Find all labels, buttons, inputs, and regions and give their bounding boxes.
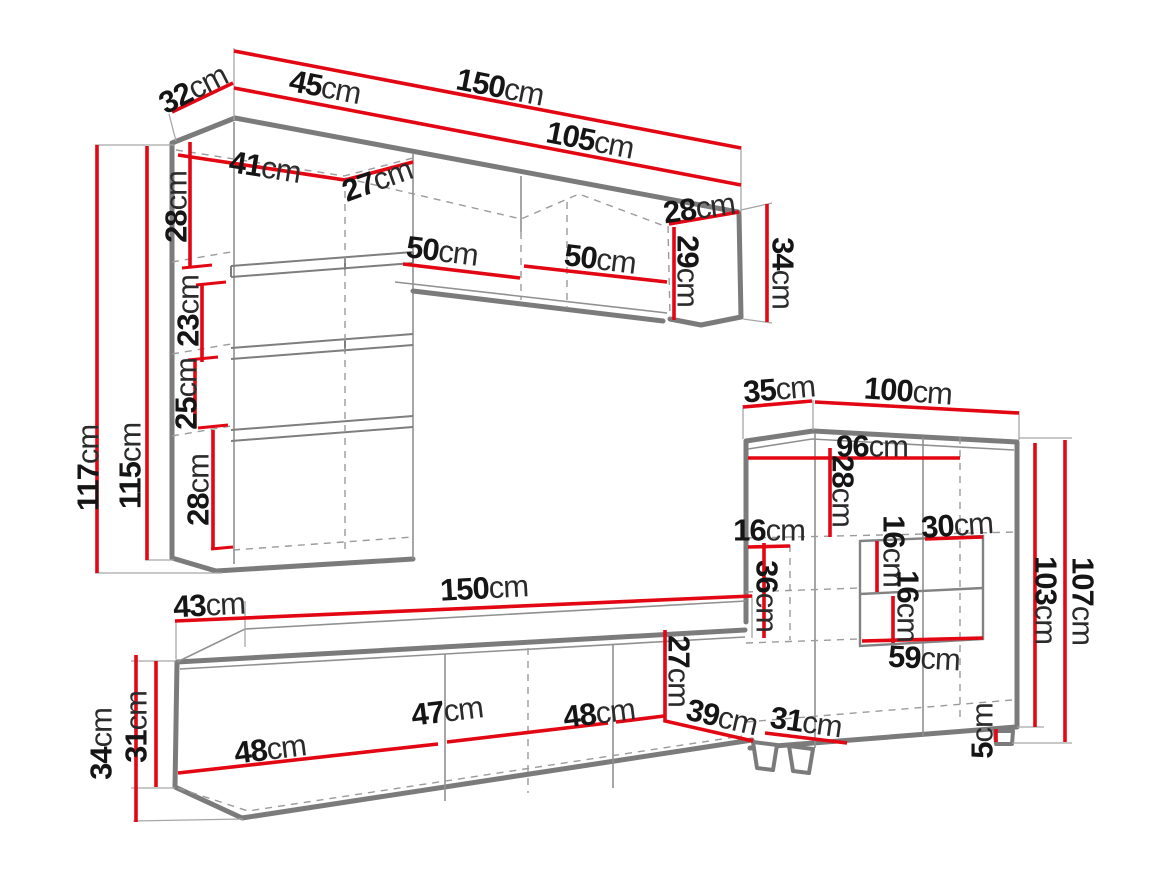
dimension-unit: cm bbox=[436, 233, 479, 273]
column-shelf-board bbox=[231, 252, 413, 277]
dimension-label-dim-103: 103cm bbox=[1031, 556, 1062, 644]
dimension-value: 28 bbox=[661, 191, 698, 230]
dimension-unit: cm bbox=[264, 727, 307, 767]
dimension-value: 5 bbox=[965, 743, 1000, 759]
dimension-unit: cm bbox=[181, 454, 216, 493]
dimension-unit: cm bbox=[84, 708, 119, 747]
dimension-unit: cm bbox=[171, 275, 206, 314]
dimension-label-dim-28-cabinet: 28cm bbox=[828, 455, 859, 527]
dimension-value: 150 bbox=[439, 570, 489, 608]
dimension-value: 47 bbox=[409, 694, 446, 733]
dimension-label-dim-50-left: 50cm bbox=[404, 231, 479, 271]
dimension-value: 43 bbox=[172, 588, 206, 625]
dimension-label-dim-35: 35cm bbox=[742, 370, 816, 407]
dimension-value: 31 bbox=[119, 730, 154, 762]
dimension-value: 30 bbox=[920, 508, 955, 545]
dimension-value: 16 bbox=[891, 570, 926, 602]
dimension-label-dim-107: 107cm bbox=[1068, 557, 1099, 645]
dimension-unit: cm bbox=[259, 149, 303, 190]
dimension-value: 107 bbox=[1066, 557, 1101, 606]
dimension-value: 29 bbox=[671, 235, 706, 267]
dimension-unit: cm bbox=[119, 691, 154, 730]
dimension-label-dim-48-door2: 48cm bbox=[561, 693, 636, 733]
dimension-value: 27 bbox=[662, 635, 697, 667]
dimension-label-dim-16-cabinet-left: 16cm bbox=[733, 515, 805, 546]
dimension-value: 28 bbox=[181, 493, 216, 525]
dimension-value: 35 bbox=[742, 372, 777, 410]
dimension-label-dim-34-tv: 34cm bbox=[86, 708, 117, 780]
dimension-unit: cm bbox=[891, 603, 926, 642]
dimension-unit: cm bbox=[591, 124, 636, 166]
dimension-value: 103 bbox=[1029, 556, 1064, 605]
dimension-label-dim-50-right: 50cm bbox=[562, 239, 637, 279]
dimension-label-dim-150-bottom: 150cm bbox=[439, 570, 529, 606]
dimension-value: 34 bbox=[766, 237, 801, 269]
dimension-label-dim-23: 23cm bbox=[173, 275, 204, 347]
dimension-value: 117 bbox=[71, 464, 106, 511]
dimension-value: 48 bbox=[232, 732, 269, 771]
dimension-unit: cm bbox=[826, 488, 861, 527]
dimension-value: 50 bbox=[404, 229, 441, 268]
dimension-label-dim-36: 36cm bbox=[752, 560, 783, 632]
dimension-label-dim-48-door1: 48cm bbox=[232, 729, 307, 769]
dimension-label-dim-59: 59cm bbox=[887, 641, 960, 676]
dimension-unit: cm bbox=[1066, 606, 1101, 645]
dimension-label-dim-115: 115cm bbox=[115, 423, 146, 509]
dimension-value: 34 bbox=[84, 747, 119, 779]
dimension-label-dim-5: 5cm bbox=[967, 703, 998, 759]
dimension-unit: cm bbox=[593, 691, 636, 731]
dimension-unit: cm bbox=[488, 568, 529, 605]
dimension-value: 100 bbox=[863, 370, 914, 408]
dimension-unit: cm bbox=[205, 586, 246, 623]
dimension-value: 28 bbox=[159, 210, 194, 242]
dimension-label-dim-47: 47cm bbox=[409, 691, 484, 731]
furniture-dimension-diagram: 32cm45cm150cm105cm41cm27cm28cm23cm25cm28… bbox=[0, 0, 1159, 869]
dimension-label-dim-30: 30cm bbox=[920, 507, 994, 543]
dimension-label-dim-25: 25cm bbox=[171, 358, 202, 430]
dimension-label-dim-100: 100cm bbox=[863, 372, 953, 409]
dimension-value: 16 bbox=[877, 515, 912, 547]
dimension-unit: cm bbox=[766, 270, 801, 309]
dimension-unit: cm bbox=[159, 171, 194, 210]
dimension-value: 115 bbox=[113, 462, 148, 509]
dimension-unit: cm bbox=[774, 368, 816, 406]
dimension-unit: cm bbox=[501, 71, 546, 113]
wall-column-cabinet bbox=[172, 118, 738, 571]
dimension-label-dim-34-shelf-end: 34cm bbox=[768, 237, 799, 309]
dimension-value: 28 bbox=[826, 455, 861, 487]
dimension-label-dim-117: 117cm bbox=[73, 425, 104, 511]
dimension-unit: cm bbox=[71, 425, 106, 464]
dimension-unit: cm bbox=[671, 268, 706, 307]
dimension-value: 50 bbox=[562, 237, 599, 276]
dimension-value: 25 bbox=[169, 397, 204, 429]
dimension-unit: cm bbox=[920, 640, 961, 677]
dimension-unit: cm bbox=[766, 513, 805, 548]
column-shelf-board bbox=[231, 334, 413, 359]
dimension-unit: cm bbox=[800, 704, 844, 744]
dimension-value: 36 bbox=[750, 560, 785, 592]
column-section-divider bbox=[231, 416, 413, 441]
dimension-label-dim-43: 43cm bbox=[172, 588, 245, 623]
dimension-label-dim-16-shelf-lower: 16cm bbox=[893, 570, 924, 642]
dimension-unit: cm bbox=[594, 241, 637, 281]
dimension-unit: cm bbox=[169, 358, 204, 397]
dimension-label-dim-28-column-top: 28cm bbox=[161, 171, 192, 243]
dimension-unit: cm bbox=[1029, 605, 1064, 644]
dimension-unit: cm bbox=[318, 69, 363, 111]
dimension-unit: cm bbox=[750, 593, 785, 632]
dimension-label-dim-29: 29cm bbox=[673, 235, 704, 307]
dimension-unit: cm bbox=[911, 374, 953, 412]
dimension-label-dim-28-column-bottom: 28cm bbox=[183, 454, 214, 526]
dimension-unit: cm bbox=[113, 423, 148, 462]
dimension-value: 23 bbox=[171, 314, 206, 346]
dimension-value: 59 bbox=[887, 639, 921, 676]
dimension-value: 48 bbox=[561, 696, 598, 735]
dimension-unit: cm bbox=[965, 703, 1000, 742]
dimension-unit: cm bbox=[441, 689, 484, 729]
dimension-unit: cm bbox=[869, 429, 908, 464]
dimension-unit: cm bbox=[952, 505, 994, 543]
dimension-value: 16 bbox=[733, 513, 765, 548]
dimension-unit: cm bbox=[693, 186, 737, 226]
dimension-label-dim-31-tv: 31cm bbox=[121, 691, 152, 763]
